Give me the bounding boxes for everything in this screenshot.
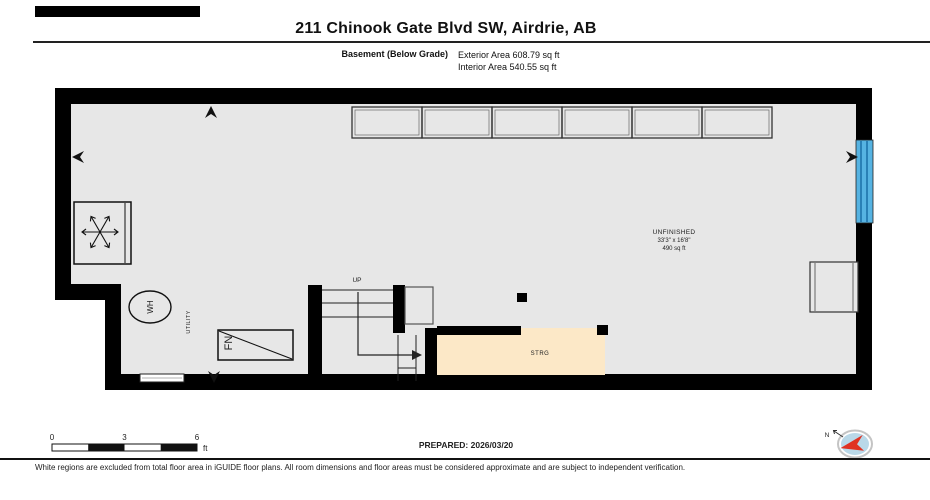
hvac-unit bbox=[74, 202, 131, 264]
water-heater-label: WH bbox=[146, 300, 155, 314]
post-column bbox=[517, 293, 527, 302]
scale-bar: 0 3 6 ft bbox=[50, 433, 208, 453]
floorplan-drawing: WH UTILITY FN UP bbox=[0, 0, 930, 500]
utility-room-label: UTILITY bbox=[186, 310, 192, 333]
furnace-icon: FN bbox=[218, 330, 293, 360]
basement-window-icon bbox=[140, 374, 184, 382]
compass-icon: N bbox=[825, 431, 872, 458]
post-column bbox=[597, 325, 608, 335]
scale-tick-0: 0 bbox=[50, 433, 55, 442]
water-heater-icon: WH bbox=[129, 291, 171, 323]
stairs-up-label: UP bbox=[352, 277, 361, 284]
right-shelf-unit bbox=[810, 262, 858, 312]
scale-tick-6: 6 bbox=[195, 433, 200, 442]
room-area: 490 sq ft bbox=[662, 246, 685, 252]
storage-label: STRG bbox=[531, 351, 550, 357]
footer-divider bbox=[0, 458, 930, 460]
floorplan-page: 211 Chinook Gate Blvd SW, Airdrie, AB Ba… bbox=[0, 0, 930, 500]
room-name: UNFINISHED bbox=[653, 229, 696, 236]
room-dimensions: 33'3" x 16'8" bbox=[658, 238, 691, 244]
disclaimer-text: White regions are excluded from total fl… bbox=[35, 463, 920, 472]
window-icon bbox=[856, 140, 873, 223]
prepared-date: PREPARED: 2026/03/20 bbox=[419, 440, 514, 450]
furnace-label: FN bbox=[223, 336, 235, 351]
scale-unit: ft bbox=[203, 444, 208, 453]
scale-tick-3: 3 bbox=[122, 433, 127, 442]
north-arrow bbox=[834, 431, 844, 438]
north-label: N bbox=[825, 432, 830, 439]
